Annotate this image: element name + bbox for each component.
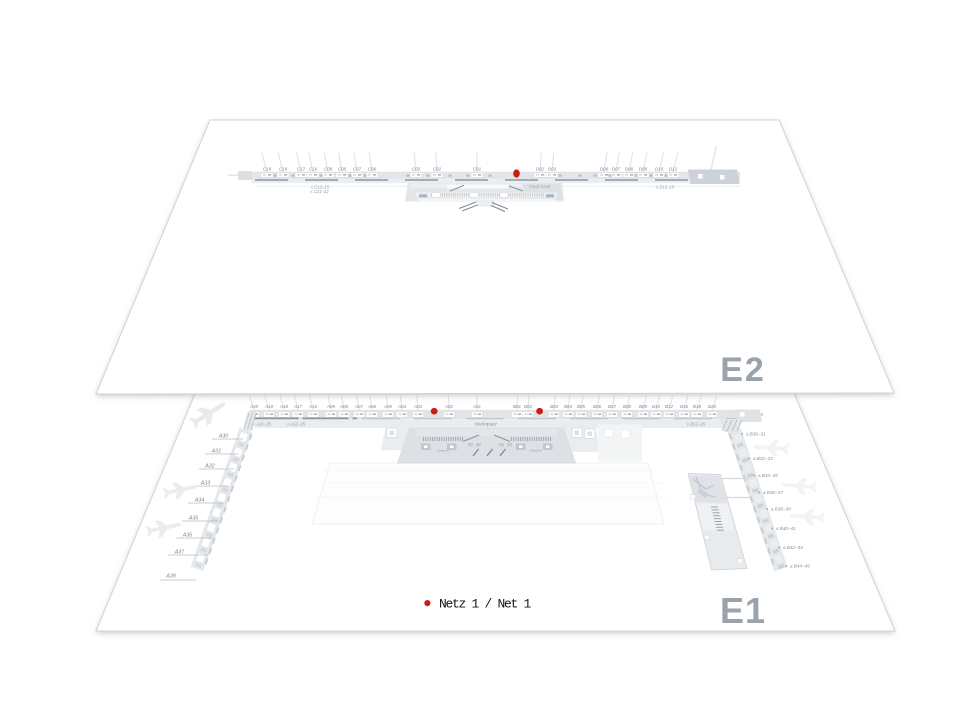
- svg-text:≤ A12–15: ≤ A12–15: [287, 421, 305, 426]
- svg-text:Marktplatz: Marktplatz: [475, 422, 498, 428]
- svg-text:A07: A07: [354, 404, 364, 409]
- svg-text:≤ A21–25: ≤ A21–25: [253, 421, 271, 426]
- svg-text:A18: A18: [279, 404, 289, 409]
- svg-text:B06: B06: [593, 404, 602, 409]
- svg-text:Check-in: Check-in: [437, 449, 449, 453]
- svg-text:C17: C17: [297, 167, 306, 172]
- svg-text:C16: C16: [309, 167, 318, 172]
- svg-text:D07: D07: [612, 167, 621, 172]
- svg-text:C18: C18: [279, 167, 288, 172]
- svg-text:B08: B08: [623, 404, 632, 409]
- svg-text:≤ B32–33: ≤ B32–33: [753, 456, 773, 461]
- svg-text:D02: D02: [536, 167, 545, 172]
- svg-text:A19: A19: [264, 404, 274, 409]
- svg-text:C01: C01: [473, 167, 482, 172]
- svg-text:≤ D12–15: ≤ D12–15: [656, 184, 675, 189]
- svg-text:B03: B03: [550, 404, 559, 409]
- svg-text:B20: B20: [708, 404, 717, 409]
- svg-text:B05: B05: [577, 404, 586, 409]
- svg-text:A06: A06: [367, 404, 377, 409]
- svg-text:A08: A08: [339, 404, 349, 409]
- svg-text:C06: C06: [368, 167, 377, 172]
- svg-text:≤ B44–45: ≤ B44–45: [790, 564, 810, 569]
- svg-text:B02: B02: [524, 404, 533, 409]
- svg-text:Food Court: Food Court: [530, 184, 552, 189]
- svg-text:Netz 1 / Net 1: Netz 1 / Net 1: [439, 597, 532, 612]
- svg-text:A02: A02: [444, 404, 454, 409]
- svg-text:A03: A03: [413, 404, 423, 409]
- svg-text:A09: A09: [326, 404, 336, 409]
- svg-text:Check-in: Check-in: [530, 449, 542, 453]
- svg-text:≤ B42–43: ≤ B42–43: [783, 545, 803, 550]
- svg-text:C02: C02: [433, 167, 442, 172]
- svg-text:A05: A05: [383, 404, 393, 409]
- svg-text:≤ B36–37: ≤ B36–37: [763, 490, 783, 495]
- svg-text:≤ B12–15: ≤ B12–15: [687, 421, 706, 426]
- svg-text:B10: B10: [652, 404, 661, 409]
- svg-text:D10: D10: [655, 167, 664, 172]
- svg-text:≤ B40–41: ≤ B40–41: [776, 526, 796, 531]
- svg-text:D09: D09: [639, 167, 648, 172]
- svg-text:D03: D03: [548, 167, 557, 172]
- svg-text:D08: D08: [625, 167, 634, 172]
- svg-text:B12: B12: [665, 404, 674, 409]
- svg-text:B16: B16: [680, 404, 689, 409]
- svg-text:≤ C21–22: ≤ C21–22: [310, 189, 329, 194]
- svg-text:B18: B18: [693, 404, 702, 409]
- svg-text:C08: C08: [338, 167, 347, 172]
- svg-text:B09: B09: [639, 404, 648, 409]
- svg-text:≤ B38–39: ≤ B38–39: [771, 507, 791, 512]
- svg-text:≤ B34–35: ≤ B34–35: [758, 473, 778, 478]
- svg-text:≤ B30–31: ≤ B30–31: [746, 432, 766, 437]
- svg-text:D06: D06: [600, 167, 609, 172]
- svg-text:E1: E1: [720, 590, 766, 631]
- svg-text:E2: E2: [720, 351, 766, 389]
- svg-text:D12: D12: [669, 167, 678, 172]
- svg-text:A20: A20: [249, 404, 259, 409]
- svg-text:C07: C07: [353, 167, 362, 172]
- svg-text:A01: A01: [472, 404, 482, 409]
- svg-text:A17: A17: [293, 404, 303, 409]
- svg-text:A04: A04: [397, 404, 407, 409]
- svg-text:C03: C03: [412, 167, 421, 172]
- svg-text:A16: A16: [308, 404, 318, 409]
- svg-text:B07: B07: [608, 404, 617, 409]
- svg-text:C19: C19: [263, 167, 272, 172]
- svg-text:B01: B01: [513, 404, 522, 409]
- svg-text:A38: A38: [165, 574, 176, 580]
- svg-text:B04: B04: [564, 404, 573, 409]
- svg-text:C09: C09: [324, 167, 333, 172]
